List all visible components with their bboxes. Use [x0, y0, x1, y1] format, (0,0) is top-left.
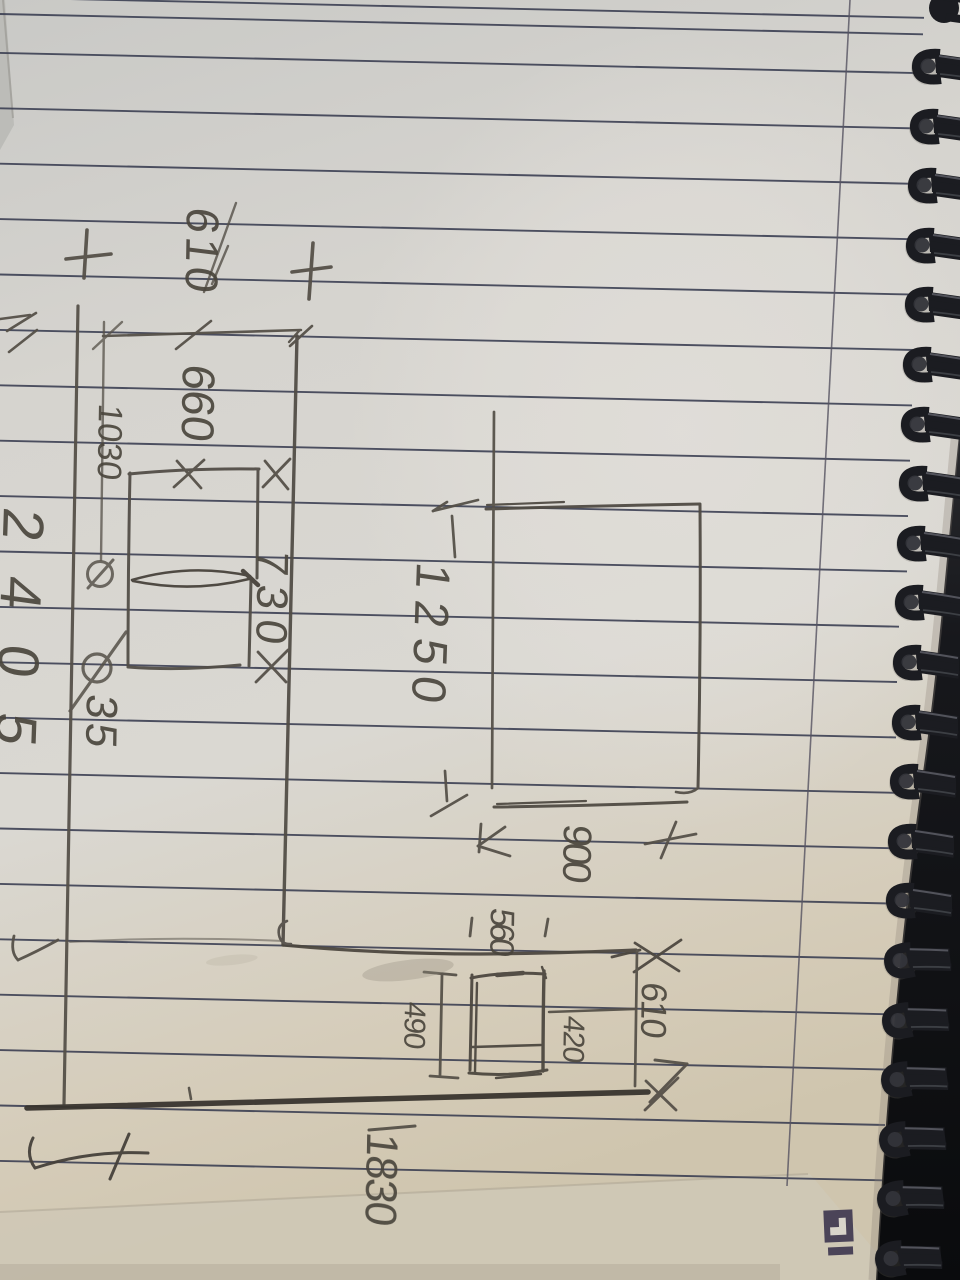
svg-text:420: 420: [556, 1014, 590, 1064]
svg-text:1830: 1830: [355, 1130, 405, 1228]
svg-text:490: 490: [397, 1000, 431, 1050]
svg-text:660: 660: [172, 362, 225, 445]
svg-text:35: 35: [76, 692, 126, 755]
svg-text:1030: 1030: [90, 402, 129, 482]
svg-text:900: 900: [554, 822, 599, 885]
svg-text:560: 560: [482, 906, 521, 958]
svg-text:2405: 2405: [0, 504, 56, 786]
svg-text:610: 610: [175, 205, 228, 300]
svg-text:730: 730: [246, 548, 297, 657]
svg-text:610: 610: [633, 980, 675, 1040]
svg-text:1250: 1250: [401, 559, 460, 717]
